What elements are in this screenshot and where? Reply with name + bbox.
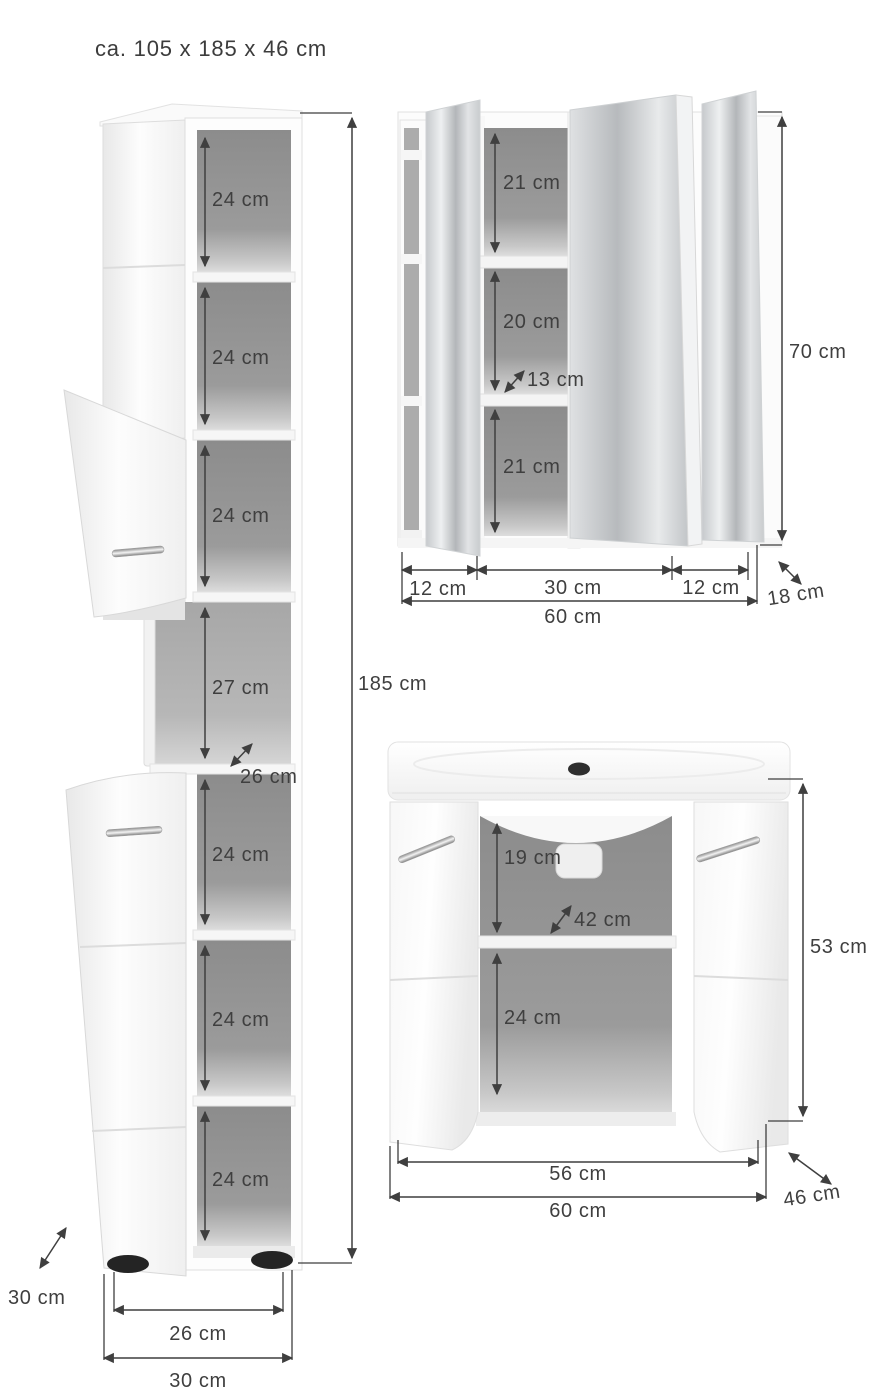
- vanity-height-label: 53 cm: [810, 937, 867, 957]
- cabinet-foot: [107, 1255, 149, 1273]
- shelf: [193, 1096, 295, 1106]
- mirror-compartment-label-2: 20 cm: [503, 312, 560, 332]
- shelf: [193, 430, 295, 440]
- tall-inner-width-label: 26 cm: [169, 1324, 226, 1344]
- tall-cabinet-upper-door: [103, 120, 185, 446]
- mirror-height-label: 70 cm: [789, 342, 846, 362]
- mirror-width-segment-label-1: 12 cm: [409, 579, 466, 599]
- mirror-total-width-label: 60 cm: [544, 607, 601, 627]
- drain-hole: [568, 763, 590, 776]
- dim-30cm-depth: [40, 1228, 66, 1268]
- vanity-inner-width-label: 56 cm: [549, 1164, 606, 1184]
- mirror-door-right-open: [702, 91, 764, 542]
- tall-depth-label: 30 cm: [8, 1288, 65, 1308]
- mirror-width-segment-label-3: 12 cm: [682, 578, 739, 598]
- tall-compartment-label-6: 24 cm: [212, 1010, 269, 1030]
- vanity-outer-width-label: 60 cm: [549, 1201, 606, 1221]
- tall-cabinet-lower-door: [66, 773, 186, 1276]
- mirror-door-left-open: [426, 100, 480, 556]
- cabinet-foot: [251, 1251, 293, 1269]
- shelf: [480, 256, 572, 268]
- mirror-door-center-open: [570, 95, 688, 546]
- mirror-cabinet: [398, 91, 782, 556]
- mirror-compartment-label-3: 21 cm: [503, 457, 560, 477]
- shelf: [193, 592, 295, 602]
- mirror-shelf-depth-label: 13 cm: [527, 370, 584, 390]
- shelf: [193, 272, 295, 282]
- tall-compartment-label-2: 24 cm: [212, 348, 269, 368]
- vanity-lower-height-label: 24 cm: [504, 1008, 561, 1028]
- cabinet-floor: [476, 1112, 676, 1126]
- tall-compartment-label-4: 27 cm: [212, 678, 269, 698]
- tall-compartment-label-3: 24 cm: [212, 506, 269, 526]
- vanity-shelf-depth-label: 42 cm: [574, 910, 631, 930]
- diagram-drawing: [0, 0, 869, 1400]
- tall-height-label: 185 cm: [358, 674, 427, 694]
- dim-46cm-depth: [789, 1153, 831, 1184]
- drain-pipe: [556, 844, 602, 878]
- mirror-width-segment-label-2: 30 cm: [544, 578, 601, 598]
- tall-compartment-label-7: 24 cm: [212, 1170, 269, 1190]
- vanity-cabinet: [388, 742, 790, 1152]
- shelf: [480, 394, 572, 406]
- overall-dimensions-title: ca. 105 x 185 x 46 cm: [95, 38, 327, 60]
- vanity-upper-height-label: 19 cm: [504, 848, 561, 868]
- dim-18cm-depth: [779, 562, 801, 584]
- tall-compartment-label-1: 24 cm: [212, 190, 269, 210]
- mirror-cabinet-left-shelves: [400, 120, 426, 544]
- shelf: [193, 930, 295, 940]
- furniture-dimension-diagram: ca. 105 x 185 x 46 cm 24 cm 24 cm 24 cm …: [0, 0, 869, 1400]
- shelf: [476, 936, 676, 948]
- mirror-compartment-label-1: 21 cm: [503, 173, 560, 193]
- tall-outer-width-label: 30 cm: [169, 1371, 226, 1391]
- tall-niche-depth-label: 26 cm: [240, 767, 297, 787]
- tall-compartment-label-5: 24 cm: [212, 845, 269, 865]
